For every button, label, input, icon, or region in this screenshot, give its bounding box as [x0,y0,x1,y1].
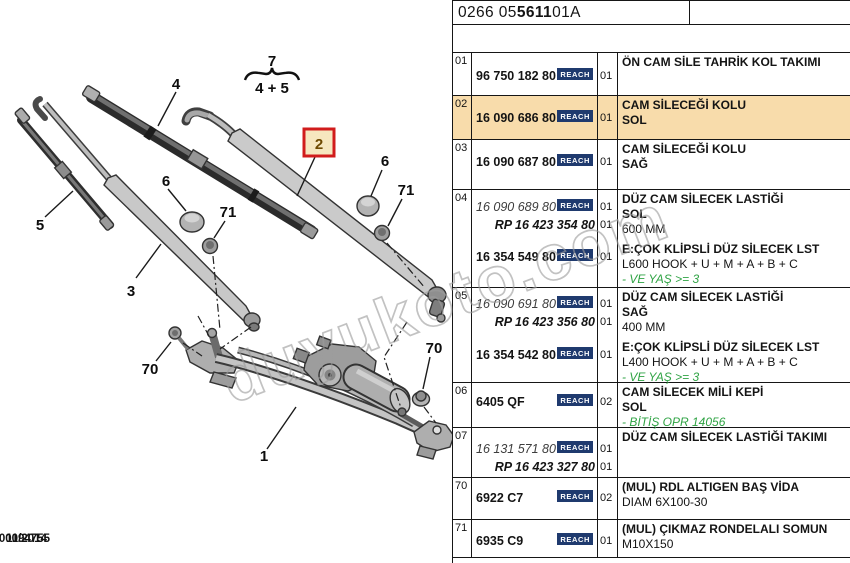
part-number: 16 131 571 80 [476,442,556,456]
reach-badge[interactable]: REACH [557,110,593,122]
description-line: (MUL) RDL ALTIGEN BAŞ VİDA [622,480,848,495]
reach-badge[interactable]: REACH [557,296,593,308]
description-cell: ÖN CAM SİLE TAHRİK KOL TAKIMI [618,53,850,95]
callout-71-label[interactable]: 71 [220,204,237,221]
ref-index: 05 [453,288,472,385]
part-number: 16 090 689 80 [476,200,556,214]
table-row-71[interactable]: 716935 C9REACH01(MUL) ÇIKMAZ RONDELALI S… [453,520,850,558]
table-row-05[interactable]: 0516 090 691 80REACHRP 16 423 356 8016 3… [453,288,850,383]
quantity: 01 [600,298,612,310]
reach-badge[interactable]: REACH [557,394,593,406]
description-cell: DÜZ CAM SİLECEK LASTİĞİSOL600 MME:ÇOK KL… [618,190,850,287]
reach-badge[interactable]: REACH [557,347,593,359]
callout-5-label[interactable]: 5 [36,217,44,234]
description-line: DIAM 6X100-30 [622,495,848,510]
quantity-cell: 010101 [598,190,618,287]
figure-code: 0266 05 5611 01A [453,1,690,24]
reach-badge[interactable]: REACH [557,441,593,453]
callout-6-label-right[interactable]: 6 [381,153,389,170]
description-line: DÜZ CAM SİLECEK LASTİĞİ [622,192,848,207]
part-number: 16 090 686 80 [476,111,556,125]
part-number-cell: 6935 C9REACH [472,520,598,557]
header-right-cell [690,1,850,24]
parts-table-panel: 0266 05 5611 01A 0196 750 182 80REACH01Ö… [452,0,850,563]
description-line: - VE YAŞ >= 3 [622,272,848,287]
quantity-cell: 01 [598,140,618,189]
part-number: RP 16 423 354 80 [495,218,595,232]
description-line: SOL [622,400,848,415]
quantity: 01 [600,251,612,263]
description-line: M10X150 [622,537,848,552]
quantity-cell: 01 [598,520,618,557]
figure-code-prefix: 0266 05 [458,4,517,22]
part-number: RP 16 423 356 80 [495,315,595,329]
callout-70-label-right[interactable]: 70 [426,340,443,357]
callout-71-label-right[interactable]: 71 [398,182,415,199]
table-row-02[interactable]: 0216 090 686 80REACH01CAM SİLECEĞİ KOLUS… [453,96,850,140]
part-number-cell: 16 131 571 80REACHRP 16 423 327 80 [472,428,598,477]
figure-code-suffix: 01A [552,4,581,22]
reach-badge[interactable]: REACH [557,199,593,211]
callout-group-7-4-5[interactable]: 7 4 + 5 [245,53,299,97]
description-line: SOL [622,113,848,128]
description-line: CAM SİLECEK MİLİ KEPİ [622,385,848,400]
quantity-cell: 01 [598,96,618,139]
part-number: 6405 QF [476,395,525,409]
part-number-cell: 6922 C7REACH [472,478,598,519]
part-number-cell: 16 090 687 80REACH [472,140,598,189]
quantity-cell: 02 [598,478,618,519]
part-number: 16 354 549 80 [476,250,556,264]
table-row-03[interactable]: 0316 090 687 80REACH01CAM SİLECEĞİ KOLUS… [453,140,850,190]
overbrace-icon [245,68,299,80]
description-line: DÜZ CAM SİLECEK LASTİĞİ [622,290,848,305]
bolt-left-graphic [169,327,188,349]
part-number: 6922 C7 [476,491,523,505]
description-line: ÖN CAM SİLE TAHRİK KOL TAKIMI [622,55,848,70]
quantity: 02 [600,396,612,408]
description-line: DÜZ CAM SİLECEK LASTİĞİ TAKIMI [622,430,848,445]
quantity: 01 [600,316,612,328]
ref-index: 06 [453,383,472,430]
table-row-06[interactable]: 066405 QFREACH02CAM SİLECEK MİLİ KEPİSOL… [453,383,850,428]
reach-badge[interactable]: REACH [557,490,593,502]
part-number: 16 090 687 80 [476,155,556,169]
reach-badge[interactable]: REACH [557,68,593,80]
quantity: 01 [600,443,612,455]
quantity: 01 [600,70,612,82]
callout-6-label[interactable]: 6 [162,173,170,190]
table-row-01[interactable]: 0196 750 182 80REACH01ÖN CAM SİLE TAHRİK… [453,52,850,96]
nut-right-graphic [375,226,390,241]
ref-index: 04 [453,190,472,287]
part-number: 16 090 691 80 [476,297,556,311]
quantity: 01 [600,535,612,547]
quantity-cell: 010101 [598,288,618,385]
reach-badge[interactable]: REACH [557,533,593,545]
callout-1-label[interactable]: 1 [260,448,268,465]
description-cell: CAM SİLECEĞİ KOLUSOL [618,96,850,139]
part-number: 6935 C9 [476,534,523,548]
part-number-cell: 6405 QFREACH [472,383,598,430]
nut-left-graphic [203,239,218,254]
part-number: 16 354 542 80 [476,348,556,362]
quantity: 01 [600,349,612,361]
quantity: 01 [600,219,612,231]
description-line: L600 HOOK + U + M + A + B + C [622,257,848,272]
part-number: RP 16 423 327 80 [495,460,595,474]
table-row-07[interactable]: 0716 131 571 80REACHRP 16 423 327 800101… [453,428,850,478]
quantity-cell: 0101 [598,428,618,477]
ref-index: 07 [453,428,472,477]
description-line: SOL [622,207,848,222]
quantity: 01 [600,201,612,213]
part-number-cell: 16 090 689 80REACHRP 16 423 354 8016 354… [472,190,598,287]
quantity: 01 [600,461,612,473]
shaft-cap-left-graphic [180,212,204,232]
description-cell: (MUL) ÇIKMAZ RONDELALI SOMUNM10X150 [618,520,850,557]
quantity: 02 [600,492,612,504]
description-line: 600 MM [622,222,848,237]
reach-badge[interactable]: REACH [557,249,593,261]
callout-2-label[interactable]: 2 [315,136,323,153]
ref-index: 71 [453,520,472,557]
description-line: E:ÇOK KLİPSLİ DÜZ SİLECEK LST [622,340,848,355]
description-line: SAĞ [622,157,848,172]
table-row-70[interactable]: 706922 C7REACH02(MUL) RDL ALTIGEN BAŞ Vİ… [453,478,850,520]
ref-index: 03 [453,140,472,189]
table-header: 0266 05 5611 01A [453,0,850,25]
quantity: 01 [600,112,612,124]
document-number: 00094755 [0,533,50,545]
description-cell: CAM SİLECEK MİLİ KEPİSOL- BİTİŞ OPR 1405… [618,383,850,430]
description-line: E:ÇOK KLİPSLİ DÜZ SİLECEK LST [622,242,848,257]
quantity-cell: 01 [598,53,618,95]
ref-index: 70 [453,478,472,519]
diagram-panel: 7 4 + 5 5 3 [0,0,452,563]
description-cell: DÜZ CAM SİLECEK LASTİĞİ TAKIMI [618,428,850,477]
description-cell: (MUL) RDL ALTIGEN BAŞ VİDADIAM 6X100-30 [618,478,850,519]
callout-3-label[interactable]: 3 [127,283,135,300]
callout-4-label[interactable]: 4 [172,76,181,93]
part-number: 96 750 182 80 [476,69,556,83]
bolt-right-graphic [413,391,430,406]
callout-70-label[interactable]: 70 [142,361,159,378]
callout-2-selected-box[interactable]: 2 [304,129,334,156]
description-line: L400 HOOK + U + M + A + B + C [622,355,848,370]
description-cell: DÜZ CAM SİLECEK LASTİĞİSAĞ400 MME:ÇOK KL… [618,288,850,385]
parts-diagram-svg: 7 4 + 5 5 3 [0,0,452,563]
description-line: CAM SİLECEĞİ KOLU [622,98,848,113]
part-number-cell: 96 750 182 80REACH [472,53,598,95]
description-line: CAM SİLECEĞİ KOLU [622,142,848,157]
description-line: SAĞ [622,305,848,320]
ref-index: 02 [453,96,472,139]
wiper-linkage-motor-graphic [186,329,452,460]
quantity: 01 [600,156,612,168]
part-number-cell: 16 090 686 80REACH [472,96,598,139]
quantity-cell: 02 [598,383,618,430]
part-number-cell: 16 090 691 80REACHRP 16 423 356 8016 354… [472,288,598,385]
callout-4plus5-label[interactable]: 4 + 5 [255,80,289,97]
reach-badge[interactable]: REACH [557,154,593,166]
ref-index: 01 [453,53,472,95]
shaft-cap-right-graphic [357,196,379,216]
description-line: (MUL) ÇIKMAZ RONDELALI SOMUN [622,522,848,537]
callout-7-label[interactable]: 7 [268,53,276,70]
description-cell: CAM SİLECEĞİ KOLUSAĞ [618,140,850,189]
figure-code-bold: 5611 [517,4,552,22]
table-row-04[interactable]: 0416 090 689 80REACHRP 16 423 354 8016 3… [453,190,850,288]
description-line: 400 MM [622,320,848,335]
